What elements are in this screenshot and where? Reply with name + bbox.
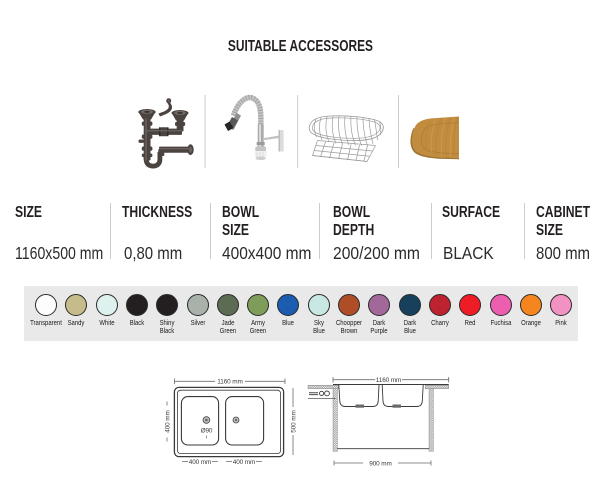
svg-text:400 mm: 400 mm (233, 459, 256, 466)
svg-text:Ø90: Ø90 (201, 428, 213, 435)
svg-text:400 mm: 400 mm (165, 410, 172, 433)
svg-text:400 mm: 400 mm (189, 459, 212, 466)
svg-text:1160 mm: 1160 mm (376, 377, 401, 384)
svg-text:1160 mm: 1160 mm (217, 379, 242, 386)
svg-text:500 mm: 500 mm (291, 410, 298, 433)
svg-text:900 mm: 900 mm (369, 461, 392, 468)
